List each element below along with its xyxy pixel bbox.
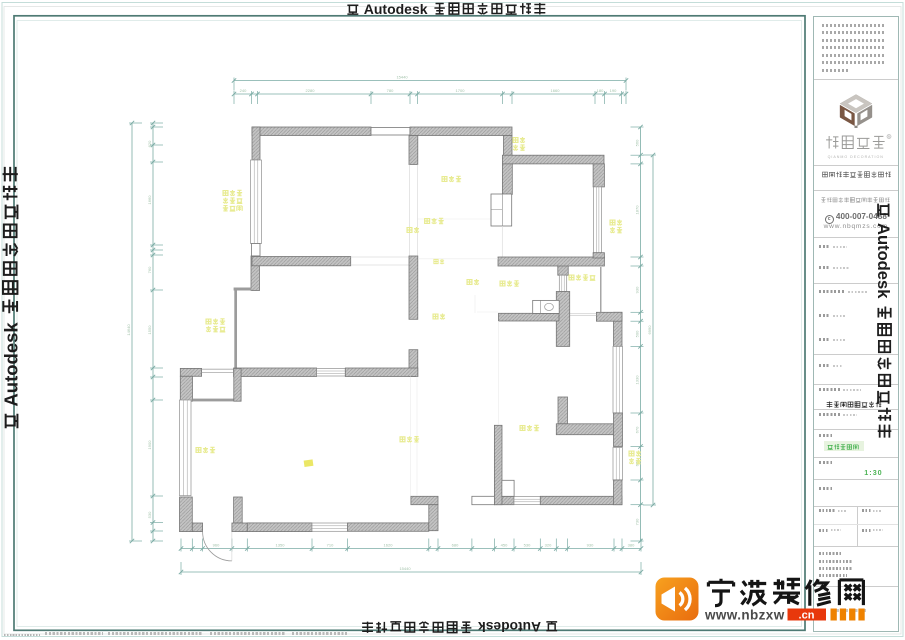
- svg-text:.cn: .cn: [799, 609, 815, 621]
- svg-text:www.nbzxw: www.nbzxw: [704, 608, 785, 623]
